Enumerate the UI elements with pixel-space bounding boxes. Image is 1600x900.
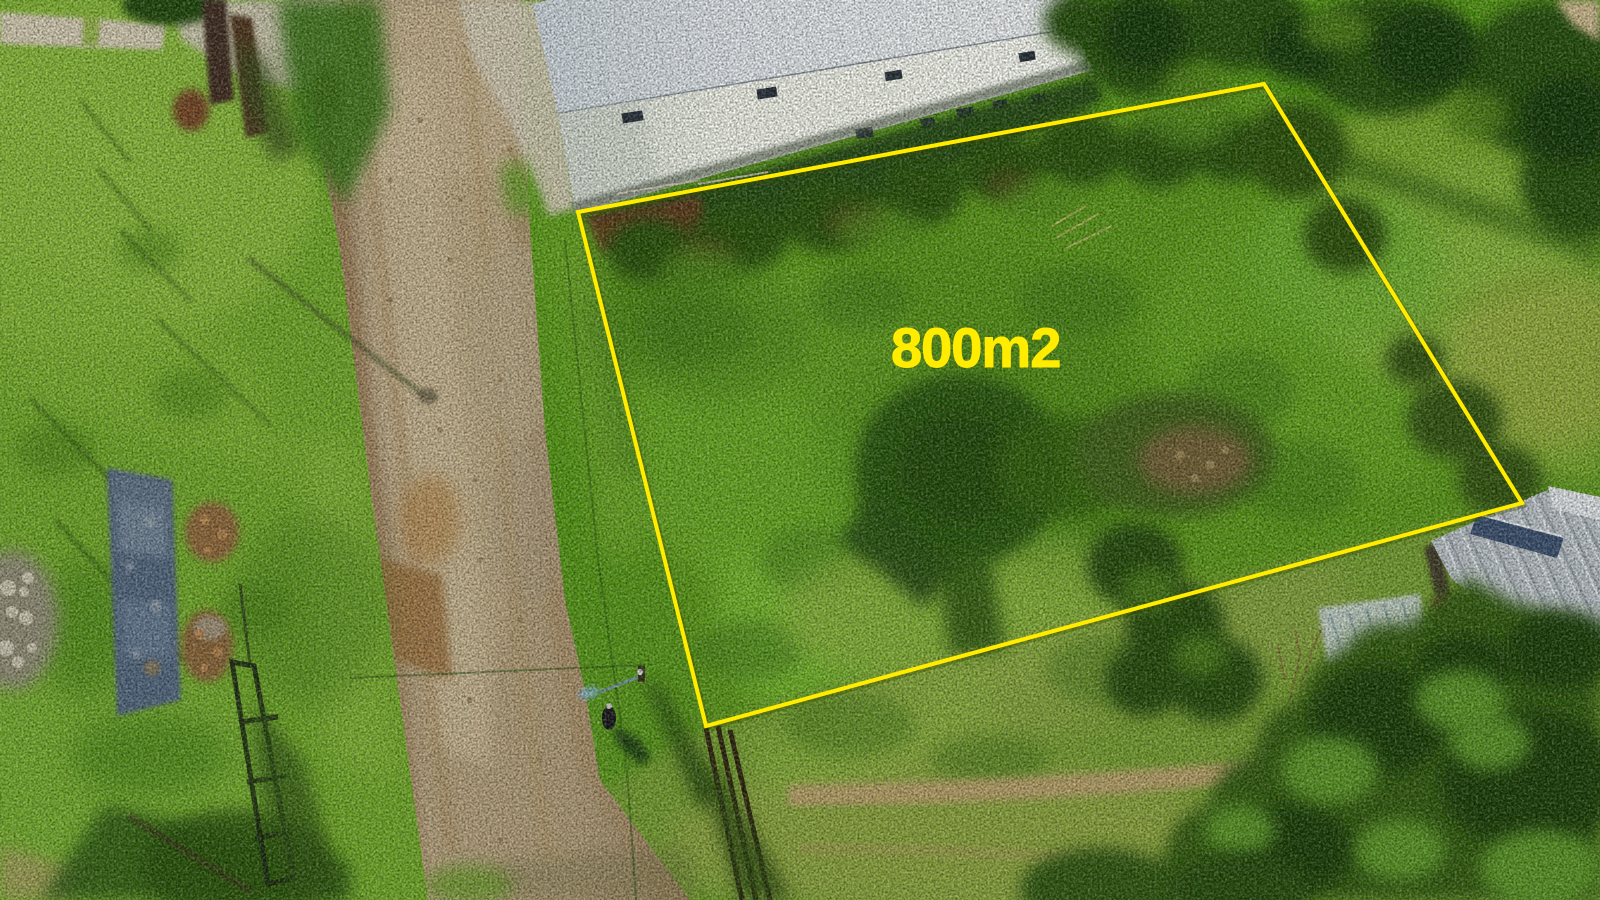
svg-text:800m2: 800m2 — [891, 316, 1060, 379]
